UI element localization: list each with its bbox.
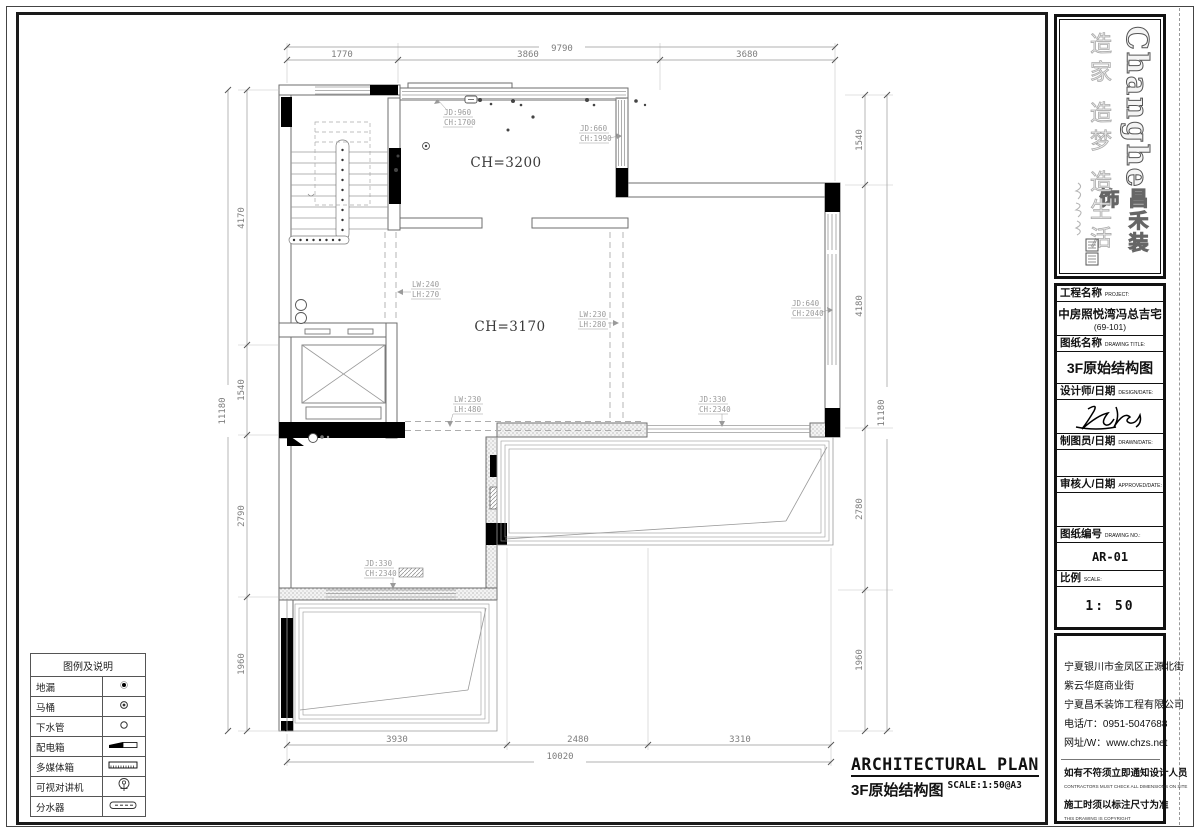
calligraphy-and-seal	[1064, 177, 1104, 267]
drawing-no-label: 图纸编号 DRAWING NO.:	[1057, 527, 1163, 543]
multimedia-box-symbol	[490, 487, 497, 509]
dim-bottom-total: 10020	[546, 752, 573, 762]
elevator-shaft	[302, 329, 385, 419]
anno-jd660-l1: JD:660	[580, 124, 608, 133]
phone-number: 电话/T：0951-5047688	[1064, 719, 1157, 731]
dim-right-s1: 1540	[855, 129, 865, 151]
address-line1: 宁夏银川市金凤区正源北街	[1064, 662, 1157, 674]
brand-logo-latin: Changhe	[1119, 26, 1154, 189]
anno-jd330b-l1: JD:330	[365, 559, 393, 568]
multimedia-box-icon	[103, 757, 146, 777]
anno-lw240-l1: LW:240	[412, 280, 440, 289]
anno-jd330a-l1: JD:330	[699, 395, 727, 404]
drawing-title-value: 3F原始结构图	[1057, 352, 1163, 384]
distribution-box-icon	[103, 737, 146, 757]
approver-value-empty	[1057, 493, 1163, 527]
dim-right-s2: 4180	[855, 295, 865, 317]
dim-top-s2: 3860	[517, 50, 539, 60]
drawing-title-label: 图纸名称 DRAWING TITLE:	[1057, 336, 1163, 352]
dim-bottom-s2: 2480	[567, 735, 589, 745]
anno-lw230b-l1: LW:230	[454, 395, 482, 404]
dim-top-s3: 3680	[736, 50, 758, 60]
notice2-en: THIS DRAWING IS COPYRIGHT	[1064, 813, 1157, 825]
notice2-cn: 施工时须以标注尺寸为准	[1064, 800, 1157, 812]
anno-jd960-l1: JD:960	[444, 108, 472, 117]
dim-right-s4: 1960	[855, 649, 865, 671]
dim-left-s2: 1540	[237, 379, 247, 401]
anno-lw230a-l2: LH:280	[579, 320, 607, 329]
video-intercom-icon	[103, 777, 146, 797]
sheet-title-en: ARCHITECTURAL PLAN	[851, 755, 1039, 777]
company-name: 宁夏昌禾装饰工程有限公司	[1064, 700, 1157, 712]
drawing-no-value: AR-01	[1057, 543, 1163, 571]
legend-label-multimedia-box: 多媒体箱	[31, 757, 103, 777]
dim-right-s3: 2780	[855, 498, 865, 520]
dim-bottom-s3: 3310	[729, 735, 751, 745]
sheet-title-cn: 3F原始结构图	[851, 779, 944, 800]
address-block: 宁夏银川市金凤区正源北街 紫云华庭商业街 宁夏昌禾装饰工程有限公司 电话/T：0…	[1054, 633, 1166, 824]
scale-label: 比例 SCALE:	[1057, 571, 1163, 587]
anno-jd330b-l2: CH:2340	[365, 569, 397, 578]
dim-right-total: 11180	[877, 399, 887, 426]
dim-bottom-s1: 3930	[386, 735, 408, 745]
approver-label: 审核人/日期 APPROVED/DATE:	[1057, 477, 1163, 493]
draftsman-label: 制图员/日期 DRAWN/DATE:	[1057, 434, 1163, 450]
leader-annotations: JD:960 CH:1700 JD:660 CH:1990 JD:640 CH:…	[364, 99, 833, 589]
anno-jd960-l2: CH:1700	[444, 118, 476, 127]
logo-panel: Changhe 昌禾装饰 造家 造梦 造生活	[1054, 14, 1166, 279]
website: 网址/W：www.chzs.net	[1064, 738, 1157, 750]
legend-label-video-intercom: 可视对讲机	[31, 777, 103, 797]
address-divider	[1061, 759, 1160, 760]
legend-label-drainpipe: 下水管	[31, 717, 103, 737]
scale-value: 1: 50	[1057, 587, 1163, 626]
floor-plan-svg: 9790 1770 3860 3680 10020 3930 2480 3310…	[0, 0, 1200, 833]
anno-jd640-l2: CH:2040	[792, 309, 824, 318]
water-separator-icon	[103, 797, 146, 817]
signature-scribble	[1070, 401, 1150, 433]
toilet-icon	[103, 697, 146, 717]
anno-lw230b-l2: LH:480	[454, 405, 482, 414]
beam-hatch-mark	[399, 568, 423, 577]
legend-title: 图例及说明	[31, 654, 146, 677]
sheet-scale-note: SCALE:1:50@A3	[948, 780, 1022, 791]
legend-label-distribution-box: 配电箱	[31, 737, 103, 757]
project-label: 工程名称 PROJECT:	[1057, 286, 1163, 302]
legend-table: 图例及说明 地漏 马桶 下水管 配电箱 多媒体箱	[30, 653, 146, 817]
anno-jd660-l2: CH:1990	[580, 134, 612, 143]
title-block: 工程名称 PROJECT: 中房照悦湾冯总吉宅 (69-101) 图纸名称 DR…	[1054, 283, 1166, 630]
staircase	[289, 122, 388, 244]
legend-label-water-separator: 分水器	[31, 797, 103, 817]
dim-top-total: 9790	[551, 44, 573, 54]
anno-jd330a-l2: CH:2340	[699, 405, 731, 414]
drainpipe-icon	[103, 717, 146, 737]
balcony-bottom	[287, 600, 497, 731]
designer-label: 设计师/日期 DESIGN/DATE:	[1057, 384, 1163, 400]
legend-label-floor-drain: 地漏	[31, 677, 103, 697]
legend-label-toilet: 马桶	[31, 697, 103, 717]
room-label-ch3200: CH=3200	[470, 155, 541, 171]
dimension-lines	[225, 43, 893, 766]
anno-lw240-l2: LH:270	[412, 290, 440, 299]
project-value: 中房照悦湾冯总吉宅 (69-101)	[1057, 302, 1163, 336]
roof-terrace-right	[497, 437, 833, 545]
dim-left-s3: 2790	[237, 505, 247, 527]
anno-lw230a-l1: LW:230	[579, 310, 607, 319]
designer-signature	[1057, 400, 1163, 434]
draftsman-value-empty	[1057, 450, 1163, 477]
drawing-sheet: 9790 1770 3860 3680 10020 3930 2480 3310…	[0, 0, 1200, 833]
dim-left-s1: 4170	[237, 207, 247, 229]
anno-jd640-l1: JD:640	[792, 299, 820, 308]
logo-inner-border: Changhe 昌禾装饰 造家 造梦 造生活	[1059, 19, 1161, 274]
sheet-title: ARCHITECTURAL PLAN 3F原始结构图 SCALE:1:50@A3	[851, 755, 1039, 800]
dim-left-total: 11180	[218, 397, 228, 424]
notice1-cn: 如有不符须立即通知设计人员	[1064, 768, 1157, 780]
notice1-en: CONTRACTORS MUST CHECK ALL DIMENSIONS ON…	[1064, 781, 1157, 793]
dim-left-s4: 1960	[237, 653, 247, 675]
dim-top-s1: 1770	[331, 50, 353, 60]
address-line2: 紫云华庭商业街	[1064, 681, 1157, 693]
room-label-ch3170: CH=3170	[474, 319, 545, 335]
floor-drain-icon	[103, 677, 146, 697]
